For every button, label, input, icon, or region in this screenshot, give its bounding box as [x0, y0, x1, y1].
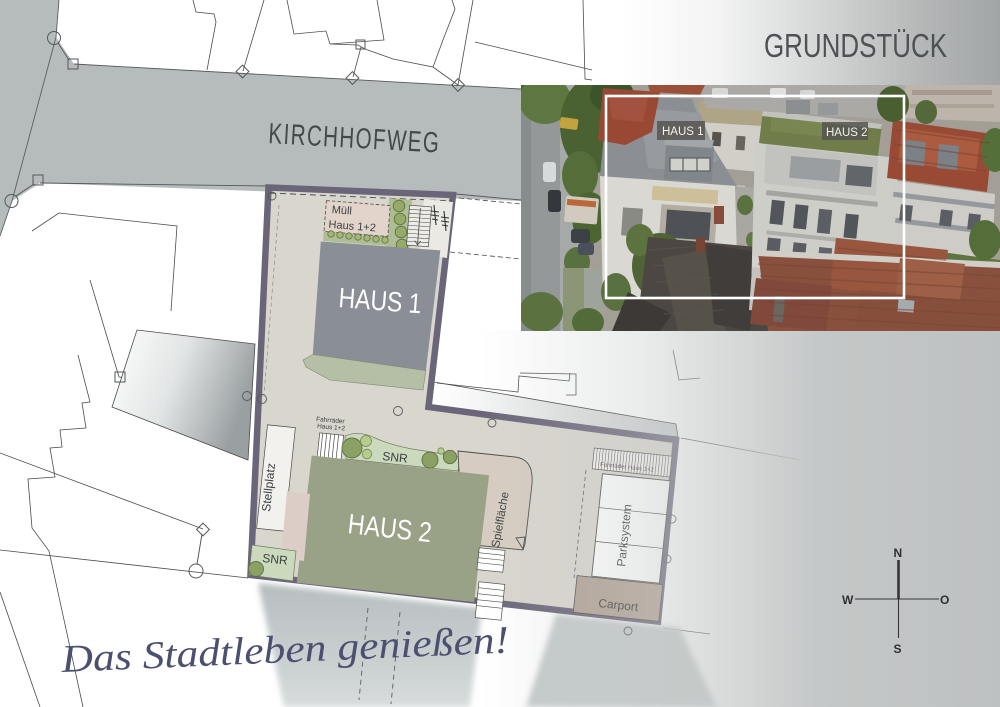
- svg-text:S: S: [894, 642, 902, 656]
- svg-text:O: O: [940, 593, 949, 607]
- svg-text:SNR: SNR: [382, 449, 409, 466]
- svg-text:HAUS 2: HAUS 2: [826, 127, 868, 139]
- svg-text:HAUS 1: HAUS 1: [338, 282, 423, 319]
- svg-text:Müll: Müll: [331, 204, 352, 218]
- svg-text:GRUNDSTÜCK: GRUNDSTÜCK: [764, 27, 947, 64]
- svg-text:N: N: [894, 546, 903, 560]
- svg-text:SNR: SNR: [262, 551, 289, 568]
- svg-text:W: W: [842, 593, 854, 607]
- svg-text:HAUS 1: HAUS 1: [662, 126, 704, 138]
